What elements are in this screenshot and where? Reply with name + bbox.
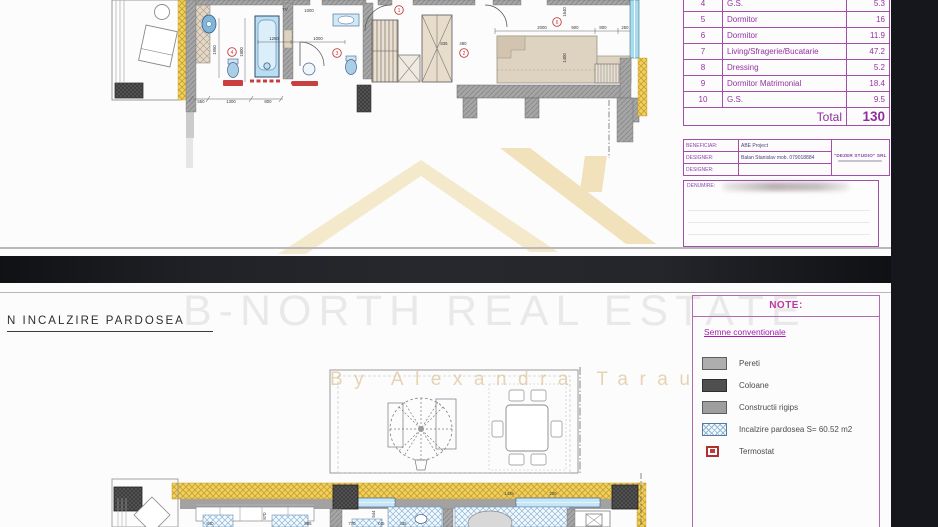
title-block-value: Balan Stanislav mob. 079018884	[739, 152, 832, 164]
balcony-left	[112, 0, 180, 100]
wall-fade	[186, 112, 194, 138]
title-block-value	[739, 164, 832, 176]
area-table-cell: 7	[684, 44, 723, 60]
wall-fade	[186, 138, 193, 168]
legend-label: Coloane	[739, 381, 769, 390]
legend-item-rigips: Constructii rigips	[702, 396, 879, 418]
dim-label: 1435	[504, 491, 514, 496]
dim-label: 840	[206, 521, 214, 526]
title-block-value: ABE Project	[739, 140, 832, 152]
area-table-row: 7Living/Sfragerie/Bucatarie47.2	[684, 44, 890, 60]
room-marker-number: 2	[463, 51, 466, 57]
parasol	[388, 398, 456, 470]
structural-wall	[186, 0, 196, 112]
rigips-swatch-icon	[702, 401, 727, 414]
legend-item-incalzire: Incalzire pardosea S= 60.52 m2	[702, 418, 879, 440]
area-table-total-row: Total 130	[684, 108, 890, 126]
pereti-swatch-icon	[702, 357, 727, 370]
bathroom-1	[196, 5, 245, 86]
area-table-cell: 8	[684, 60, 723, 76]
toilet-fixture	[228, 63, 239, 78]
area-table-cell: 10	[684, 92, 723, 108]
dim-label: 870	[262, 512, 267, 520]
dim-label: 544	[371, 510, 376, 518]
top-walls	[196, 0, 630, 5]
termostat-swatch-icon	[706, 446, 719, 457]
coloane-swatch-icon	[702, 379, 727, 392]
dim-label: 900	[571, 25, 579, 30]
toilet-fixture	[346, 60, 357, 75]
dim-label: 1800	[239, 47, 244, 57]
plan-heading: N INCALZIRE PARDOSEA	[7, 315, 213, 332]
room-marker-number: 3	[336, 51, 339, 57]
shower-room	[574, 511, 610, 527]
radiator	[223, 80, 243, 86]
area-table-row: 4G.S.5.3	[684, 0, 890, 12]
legend-item-pereti: Pereti	[702, 352, 879, 374]
dim-label: 1000	[304, 8, 314, 13]
legend-label: Termostat	[739, 447, 774, 456]
company-cell: "DEZER STUDIO" SRL	[832, 140, 890, 176]
area-table-cell: 9.5	[847, 92, 890, 108]
title-block-label: DESIGNER:	[684, 164, 739, 176]
note-box: NOTE: Semne conventionale PeretiColoaneC…	[692, 295, 880, 527]
sheet-floor-heating: B-NORTH REAL ESTATE By Alexandra Tarau	[0, 283, 891, 527]
total-value: 130	[847, 108, 890, 126]
dim-label: 1640	[562, 7, 567, 17]
dim-label: 250	[621, 25, 629, 30]
dim-label: 2000	[537, 25, 547, 30]
radiator	[292, 81, 318, 86]
legend-list: PeretiColoaneConstructii rigipsIncalzire…	[702, 352, 879, 462]
exterior-wall-yellow	[172, 483, 645, 499]
dim-label: 200	[549, 491, 557, 496]
dim-label: 550	[197, 99, 205, 104]
dim-label: 1300	[226, 99, 236, 104]
area-table-row: 5Dormitor16	[684, 12, 890, 28]
dim-label: TV	[282, 7, 288, 12]
dim-label: 1950	[212, 45, 217, 55]
area-table-body: 4G.S.5.35Dormitor166Dormitor11.97Living/…	[684, 0, 890, 108]
sheet-floor-plan: 550130080019501800125010001000TV83648020…	[0, 0, 891, 256]
wardrobe-units	[372, 15, 452, 82]
area-table-cell: 9	[684, 76, 723, 92]
area-table-cell: 18.4	[847, 76, 890, 92]
area-table-row: 8Dressing5.2	[684, 60, 890, 76]
area-table-cell: 47.2	[847, 44, 890, 60]
door-arc	[485, 5, 507, 27]
room-marker-number: 1	[398, 8, 401, 14]
conventional-signs-link[interactable]: Semne conventionale	[704, 327, 786, 337]
company-name: "DEZER STUDIO" SRL	[834, 153, 887, 158]
page-gap-divider	[0, 256, 938, 283]
area-table-cell: 5.2	[847, 60, 890, 76]
dining-set	[489, 384, 566, 470]
sink-fixture	[303, 63, 315, 75]
legend-label: Incalzire pardosea S= 60.52 m2	[739, 425, 852, 434]
area-table-cell: Dormitor Matrimonial	[723, 76, 847, 92]
room-marker-number: 6	[556, 20, 559, 26]
area-table-row: 10G.S.9.5	[684, 92, 890, 108]
incalzire-swatch-icon	[702, 423, 727, 436]
dim-label: 800	[264, 99, 272, 104]
area-table-cell: G.S.	[723, 0, 847, 12]
dim-label: 836	[440, 41, 448, 46]
toilet-fixture	[415, 515, 427, 524]
door-arc	[300, 42, 324, 66]
dim-label: 745	[377, 521, 385, 526]
stamp-label: DENUMIRE:	[687, 183, 715, 189]
company-subline-illegible	[838, 160, 882, 163]
right-dark-margin	[891, 0, 938, 527]
area-table-cell: 5	[684, 12, 723, 28]
area-table-cell: G.S.	[723, 92, 847, 108]
dim-label: 1000	[313, 36, 323, 41]
area-table: 4G.S.5.35Dormitor166Dormitor11.97Living/…	[683, 0, 890, 126]
note-title: NOTE:	[693, 296, 879, 317]
area-table-cell: Dressing	[723, 60, 847, 76]
room-marker-number: 4	[231, 50, 234, 56]
stamp-faint-lines	[688, 199, 870, 239]
area-table-cell: 5.3	[847, 0, 890, 12]
area-table-cell: 11.9	[847, 28, 890, 44]
legend-label: Constructii rigips	[739, 403, 798, 412]
total-label: Total	[684, 108, 847, 126]
bottom-walls	[457, 85, 639, 122]
title-block-label: BENEFICIAR:	[684, 140, 739, 152]
area-table-cell: Dormitor	[723, 28, 847, 44]
dim-label: 770	[348, 521, 356, 526]
legend-item-termostat: Termostat	[702, 440, 879, 462]
dim-label: 1400	[562, 53, 567, 63]
area-table-row: 9Dormitor Matrimonial18.4	[684, 76, 890, 92]
dim-label: 335	[399, 521, 407, 526]
legend-item-coloane: Coloane	[702, 374, 879, 396]
screen: 550130080019501800125010001000TV83648020…	[0, 0, 938, 527]
dim-label: 1250	[269, 36, 279, 41]
legend-label: Pereti	[739, 359, 760, 368]
sheet1-bottom-border	[0, 247, 891, 249]
brand-roof-logo-watermark	[248, 148, 678, 256]
column	[357, 85, 371, 112]
area-table-cell: 16	[847, 12, 890, 28]
area-table-cell: 4	[684, 0, 723, 12]
exterior-wall-yellow	[178, 0, 186, 100]
dim-label: 885	[304, 521, 312, 526]
area-table-cell: 6	[684, 28, 723, 44]
area-table-cell: Dormitor	[723, 12, 847, 28]
dim-label: 480	[459, 41, 467, 46]
title-block-label: DESIGNER:	[684, 152, 739, 164]
title-block: BENEFICIAR: ABE Project "DEZER STUDIO" S…	[683, 139, 890, 176]
area-table-row: 6Dormitor11.9	[684, 28, 890, 44]
dim-label: 800	[599, 25, 607, 30]
balcony-left	[112, 479, 178, 527]
stamp-box: DENUMIRE:	[683, 180, 879, 247]
signature-smudge	[722, 182, 850, 191]
area-table-cell: Living/Sfragerie/Bucatarie	[723, 44, 847, 60]
